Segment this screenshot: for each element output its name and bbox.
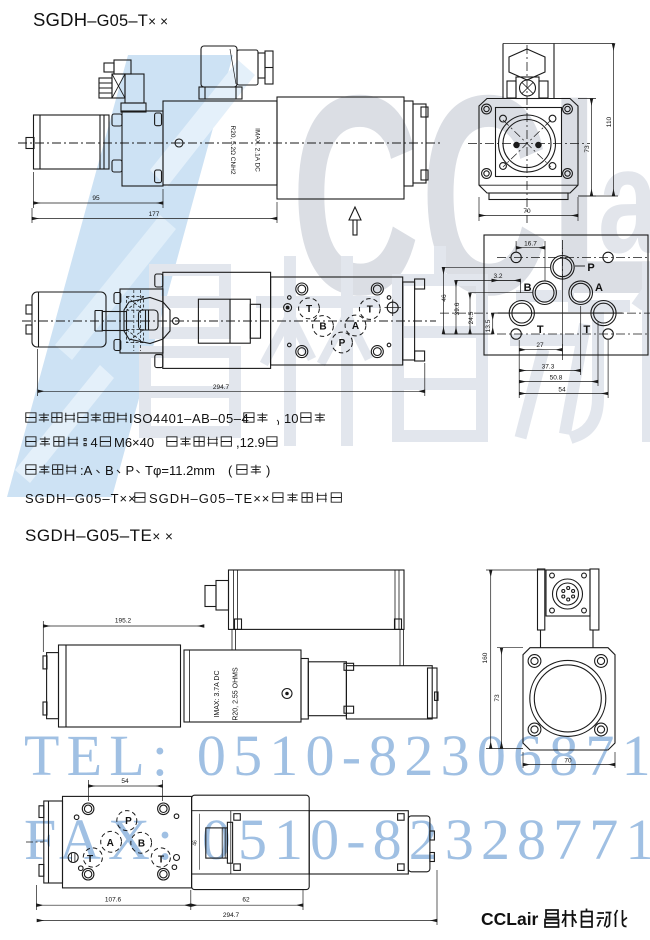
svg-text:160: 160 [482, 652, 489, 663]
svg-text:R20, 2.55 OHMS: R20, 2.55 OHMS [233, 667, 240, 721]
svg-text:10: 10 [284, 411, 298, 426]
svg-text:24.5: 24.5 [468, 311, 475, 324]
svg-text:air: air [598, 117, 650, 285]
svg-text:54: 54 [558, 387, 566, 394]
svg-text:T: T [367, 305, 373, 316]
svg-text:,12.9: ,12.9 [236, 435, 265, 450]
svg-text:3.2: 3.2 [493, 273, 502, 280]
svg-text:SGDH–G05–T× ×: SGDH–G05–T× × [33, 9, 168, 30]
svg-text:SGDH–G05–T××: SGDH–G05–T×× [25, 491, 137, 506]
svg-text:107.6: 107.6 [105, 897, 122, 904]
svg-text:B: B [524, 282, 532, 294]
svg-text:P: P [587, 262, 594, 274]
svg-text:SGDH–G05–TE××: SGDH–G05–TE×× [149, 491, 270, 506]
svg-text:): ) [266, 463, 270, 478]
svg-text:P: P [126, 463, 135, 478]
svg-text:P: P [339, 338, 346, 349]
svg-text:70: 70 [523, 208, 531, 215]
svg-text:294.7: 294.7 [213, 384, 230, 391]
svg-text:B: B [138, 839, 145, 850]
svg-text:R20, 5.2Ω CNH2: R20, 5.2Ω CNH2 [229, 126, 236, 175]
svg-text:A: A [352, 321, 359, 332]
svg-text:37.3: 37.3 [542, 364, 555, 371]
svg-text:M6×40: M6×40 [114, 435, 154, 450]
svg-text:177: 177 [149, 211, 160, 218]
svg-text:50.8: 50.8 [550, 375, 563, 382]
svg-text:195.2: 195.2 [115, 618, 132, 625]
svg-text:27: 27 [536, 342, 544, 349]
svg-text:ISO4401–AB–05–4: ISO4401–AB–05–4 [129, 411, 249, 426]
svg-text:54: 54 [121, 778, 129, 785]
svg-text:95: 95 [92, 195, 100, 202]
svg-text:13.5: 13.5 [485, 319, 492, 332]
svg-text:TEL: 0510-82306871: TEL: 0510-82306871 [24, 723, 650, 788]
svg-text:(: ( [228, 463, 233, 478]
svg-text:FAX: 0510-82328771: FAX: 0510-82328771 [24, 807, 650, 872]
svg-text:46: 46 [193, 840, 199, 846]
svg-text:B: B [319, 322, 326, 333]
svg-text:T: T [537, 324, 544, 336]
svg-text:4: 4 [91, 435, 98, 450]
svg-text:294.7: 294.7 [223, 912, 240, 919]
svg-text:62: 62 [242, 897, 250, 904]
svg-text:T: T [306, 304, 312, 315]
svg-text:B: B [105, 463, 114, 478]
svg-text:T: T [158, 855, 164, 866]
svg-text:110: 110 [606, 116, 613, 127]
svg-text:IMAX. 2.1A DC: IMAX. 2.1A DC [254, 128, 261, 172]
svg-text:A: A [107, 838, 114, 849]
svg-text:P: P [125, 816, 132, 827]
svg-text::A: :A [80, 463, 93, 478]
svg-text:39.6: 39.6 [454, 302, 461, 315]
svg-text:SGDH–G05–TE× ×: SGDH–G05–TE× × [25, 526, 173, 545]
svg-text:T: T [87, 854, 93, 865]
svg-text:Tφ=11.2mm: Tφ=11.2mm [145, 463, 215, 478]
svg-text:73: 73 [584, 145, 591, 153]
svg-text:T: T [583, 324, 590, 336]
svg-text:46: 46 [441, 294, 448, 302]
svg-text:70: 70 [564, 758, 572, 765]
svg-text:IMAX: 3.7A DC: IMAX: 3.7A DC [214, 670, 221, 717]
svg-text:A: A [595, 282, 603, 294]
svg-text:73: 73 [494, 694, 501, 702]
svg-text:16.7: 16.7 [524, 241, 537, 248]
svg-text:CCLair: CCLair [481, 909, 539, 929]
